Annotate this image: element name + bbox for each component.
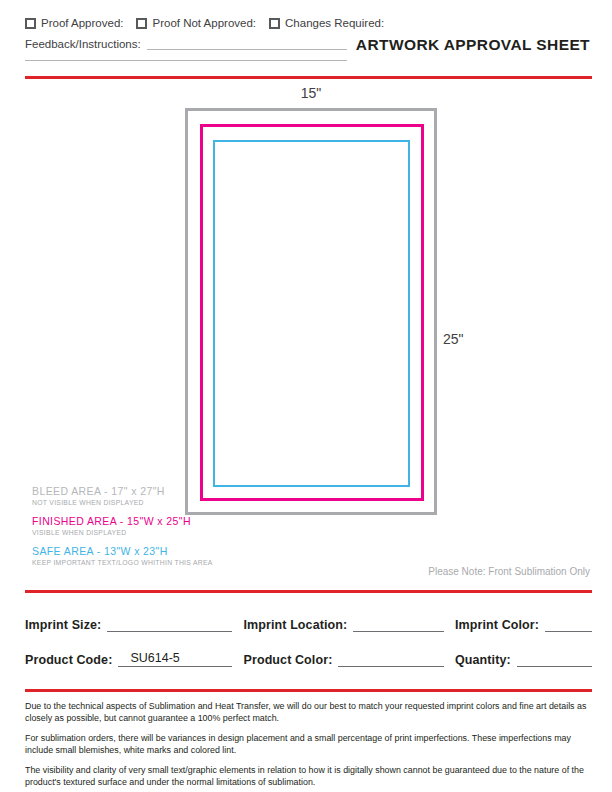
product-color-input-line[interactable] (338, 651, 443, 667)
legend-bleed-subtitle: NOT VISIBLE WHEN DISPLAYED (32, 499, 213, 506)
quantity-input-line[interactable] (517, 651, 592, 667)
safe-area-rect (213, 140, 410, 487)
disclaimer-text: Due to the technical aspects of Sublimat… (25, 700, 592, 792)
legend-finished-title: FINISHED AREA - 15"W x 25"H (32, 515, 213, 527)
page-title: ARTWORK APPROVAL SHEET (356, 36, 590, 54)
artwork-approval-sheet: Proof Approved: Proof Not Approved: Chan… (0, 0, 612, 792)
approval-checkbox-row: Proof Approved: Proof Not Approved: Chan… (25, 17, 384, 29)
quantity-label: Quantity: (455, 653, 511, 667)
height-dimension-label: 25" (443, 331, 464, 347)
imprint-location-input-line[interactable] (353, 616, 443, 632)
product-code-label: Product Code: (25, 653, 112, 667)
proof-approved-label: Proof Approved: (41, 17, 123, 29)
imprint-size-field: Imprint Size: (25, 614, 232, 632)
bleed-area-rect (185, 108, 437, 515)
divider-bottom (25, 689, 592, 692)
disclaimer-paragraph-3: The visibility and clarity of very small… (25, 764, 592, 789)
divider-top (25, 76, 592, 79)
legend-item-finished: FINISHED AREA - 15"W x 25"H VISIBLE WHEN… (32, 515, 213, 536)
product-code-input-line[interactable]: SU614-5 (118, 651, 232, 667)
changes-required-group: Changes Required: (269, 17, 384, 29)
proof-not-approved-checkbox[interactable] (136, 18, 147, 29)
proof-not-approved-label: Proof Not Approved: (152, 17, 256, 29)
changes-required-label: Changes Required: (285, 17, 384, 29)
proof-approved-checkbox[interactable] (25, 18, 36, 29)
legend-safe-title: SAFE AREA - 13"W x 23"H (32, 545, 213, 557)
product-color-field: Product Color: (244, 649, 444, 667)
imprint-color-label: Imprint Color: (455, 618, 539, 632)
feedback-input-line-2[interactable] (25, 48, 347, 61)
proof-not-approved-group: Proof Not Approved: (136, 17, 256, 29)
imprint-size-label: Imprint Size: (25, 618, 101, 632)
proof-approved-group: Proof Approved: (25, 17, 123, 29)
imprint-location-label: Imprint Location: (244, 618, 348, 632)
disclaimer-paragraph-2: For sublimation orders, there will be va… (25, 732, 592, 757)
imprint-size-input-line[interactable] (107, 616, 232, 632)
width-dimension-label: 15" (185, 85, 437, 101)
product-color-label: Product Color: (244, 653, 333, 667)
divider-middle (25, 590, 592, 593)
imprint-color-field: Imprint Color: (455, 614, 592, 632)
legend-item-bleed: BLEED AREA - 17" x 27"H NOT VISIBLE WHEN… (32, 485, 213, 506)
finished-area-rect (200, 124, 424, 501)
legend-bleed-title: BLEED AREA - 17" x 27"H (32, 485, 213, 497)
disclaimer-paragraph-1: Due to the technical aspects of Sublimat… (25, 700, 592, 725)
quantity-field: Quantity: (455, 649, 592, 667)
changes-required-checkbox[interactable] (269, 18, 280, 29)
imprint-location-field: Imprint Location: (244, 614, 444, 632)
product-code-field: Product Code: SU614-5 (25, 649, 232, 667)
order-form: Imprint Size: Imprint Location: Imprint … (25, 614, 592, 667)
legend-item-safe: SAFE AREA - 13"W x 23"H KEEP IMPORTANT T… (32, 545, 213, 566)
imprint-color-input-line[interactable] (545, 616, 592, 632)
legend-finished-subtitle: VISIBLE WHEN DISPLAYED (32, 529, 213, 536)
sublimation-note: Please Note: Front Sublimation Only (428, 566, 590, 577)
legend-safe-subtitle: KEEP IMPORTANT TEXT/LOGO WHITHIN THIS AR… (32, 559, 213, 566)
area-legend: BLEED AREA - 17" x 27"H NOT VISIBLE WHEN… (32, 485, 213, 575)
product-code-value: SU614-5 (130, 651, 179, 665)
